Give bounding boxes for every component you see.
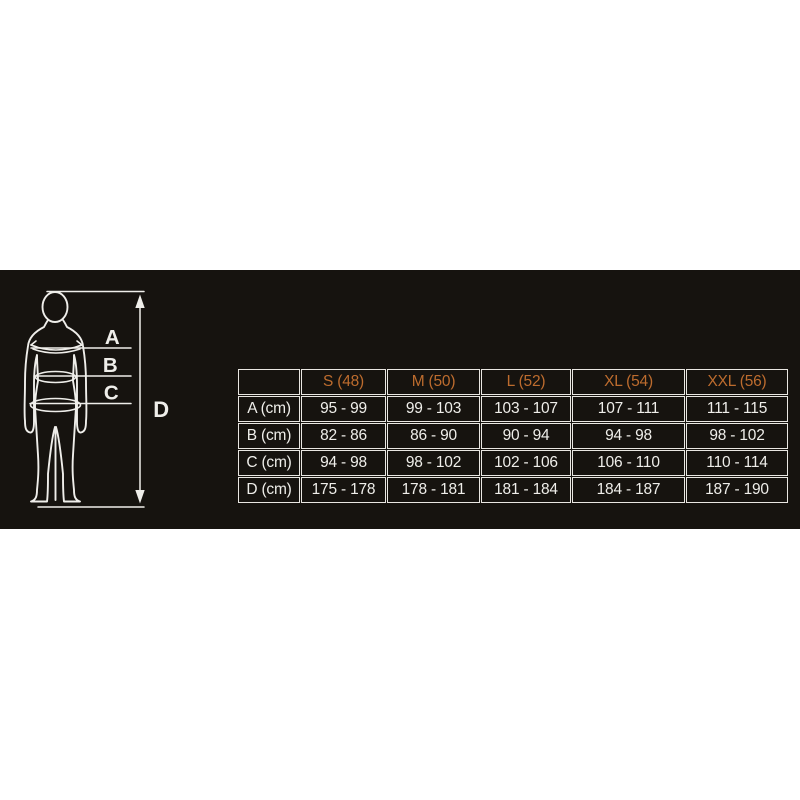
- hip-measure-ellipse: [31, 399, 81, 412]
- chest-arrowheads: [31, 341, 82, 347]
- size-chart-header-row: S (48) M (50) L (52) XL (54) XXL (56): [238, 369, 788, 395]
- table-row-d: D (cm) 175 - 178 178 - 181 181 - 184 184…: [238, 477, 788, 503]
- cell-b-l: 90 - 94: [481, 423, 571, 449]
- cell-c-xxl: 110 - 114: [686, 450, 788, 476]
- table-row-c: C (cm) 94 - 98 98 - 102 102 - 106 106 - …: [238, 450, 788, 476]
- figure-head: [43, 292, 68, 322]
- cell-b-xl: 94 - 98: [572, 423, 685, 449]
- waist-measure-ellipse: [36, 372, 76, 383]
- cell-c-s: 94 - 98: [301, 450, 386, 476]
- row-label-c: C (cm): [238, 450, 300, 476]
- cell-d-s: 175 - 178: [301, 477, 386, 503]
- height-arrow-top-head: [135, 295, 144, 309]
- cell-a-m: 99 - 103: [387, 396, 480, 422]
- cell-a-s: 95 - 99: [301, 396, 386, 422]
- table-row-b: B (cm) 82 - 86 86 - 90 90 - 94 94 - 98 9…: [238, 423, 788, 449]
- measurement-label-d: D: [153, 397, 168, 422]
- cell-a-xl: 107 - 111: [572, 396, 685, 422]
- height-arrow-bottom-head: [135, 490, 144, 504]
- cell-d-l: 181 - 184: [481, 477, 571, 503]
- size-guide-panel: A B C D S (48) M (50) L (52) XL (54) XXL…: [0, 270, 800, 529]
- cell-b-s: 82 - 86: [301, 423, 386, 449]
- col-header-l: L (52): [481, 369, 571, 395]
- chest-measure-arc: [31, 345, 82, 353]
- row-label-d: D (cm): [238, 477, 300, 503]
- cell-d-m: 178 - 181: [387, 477, 480, 503]
- col-header-xxl: XXL (56): [686, 369, 788, 395]
- measurement-label-a: A: [105, 326, 120, 349]
- measurement-label-b: B: [103, 354, 117, 377]
- cell-b-m: 86 - 90: [387, 423, 480, 449]
- col-header-s: S (48): [301, 369, 386, 395]
- measurement-label-c: C: [104, 382, 119, 405]
- cell-c-m: 98 - 102: [387, 450, 480, 476]
- cell-b-xxl: 98 - 102: [686, 423, 788, 449]
- row-label-a: A (cm): [238, 396, 300, 422]
- table-row-a: A (cm) 95 - 99 99 - 103 103 - 107 107 - …: [238, 396, 788, 422]
- col-header-m: M (50): [387, 369, 480, 395]
- row-label-b: B (cm): [238, 423, 300, 449]
- size-guide-image: A B C D S (48) M (50) L (52) XL (54) XXL…: [0, 0, 800, 800]
- cell-c-xl: 106 - 110: [572, 450, 685, 476]
- cell-c-l: 102 - 106: [481, 450, 571, 476]
- size-chart-table: S (48) M (50) L (52) XL (54) XXL (56) A …: [237, 368, 789, 504]
- cell-d-xxl: 187 - 190: [686, 477, 788, 503]
- cell-d-xl: 184 - 187: [572, 477, 685, 503]
- col-header-xl: XL (54): [572, 369, 685, 395]
- cell-a-l: 103 - 107: [481, 396, 571, 422]
- cell-a-xxl: 111 - 115: [686, 396, 788, 422]
- body-measurement-diagram: A B C D: [0, 270, 210, 529]
- corner-cell: [238, 369, 300, 395]
